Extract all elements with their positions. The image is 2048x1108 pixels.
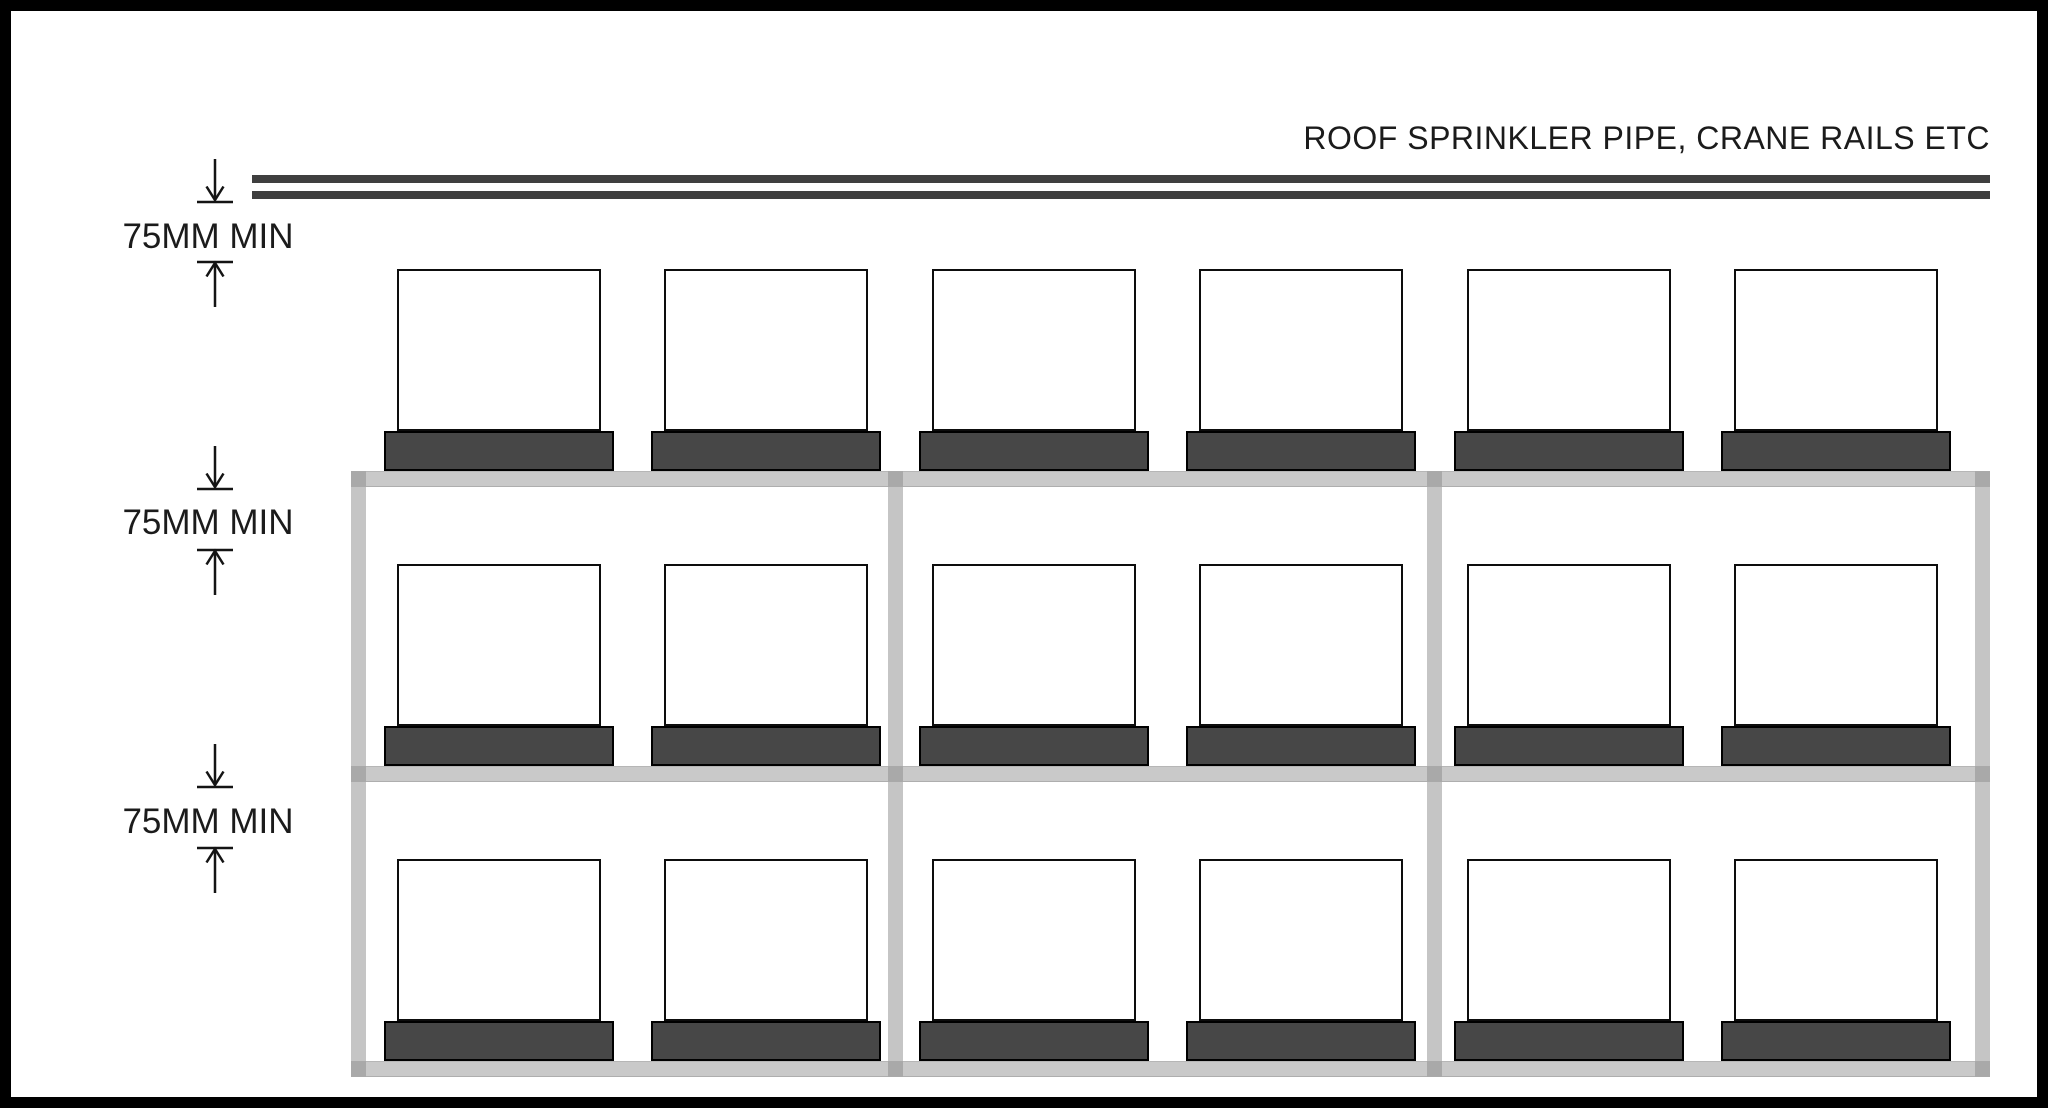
pallet-load-box bbox=[397, 564, 601, 726]
rack-beam-upright-junction bbox=[1427, 471, 1442, 487]
pallet-load-box bbox=[1199, 269, 1403, 431]
pallet-base bbox=[919, 1021, 1149, 1061]
pallet-base bbox=[1454, 726, 1684, 766]
pallet-base bbox=[384, 726, 614, 766]
rack-beam-upright-junction bbox=[888, 471, 903, 487]
rack-beam-upright-junction bbox=[888, 1061, 903, 1077]
pallet-base bbox=[1721, 1021, 1951, 1061]
pallet-load-box bbox=[664, 859, 868, 1021]
pallet-load-box bbox=[1467, 564, 1671, 726]
pallet-base bbox=[1186, 1021, 1416, 1061]
rack-beam bbox=[351, 471, 1990, 487]
rack-beam bbox=[351, 1061, 1990, 1077]
pallet-load-box bbox=[664, 564, 868, 726]
pallet-base bbox=[1721, 431, 1951, 471]
rack-beam-upright-junction bbox=[351, 471, 366, 487]
rack-beam-upright-junction bbox=[351, 766, 366, 782]
pallet-base bbox=[1454, 431, 1684, 471]
pallet-base bbox=[651, 1021, 881, 1061]
rack-beam-upright-junction bbox=[1975, 471, 1990, 487]
pallet-load-box bbox=[1734, 564, 1938, 726]
pallet-base bbox=[384, 431, 614, 471]
rack-beam-upright-junction bbox=[1975, 766, 1990, 782]
pallet-base bbox=[651, 726, 881, 766]
rack-beam-upright-junction bbox=[888, 766, 903, 782]
rack-beam bbox=[351, 766, 1990, 782]
rack-beam-upright-junction bbox=[1427, 1061, 1442, 1077]
pallet-load-box bbox=[664, 269, 868, 431]
clearance-diagram: ROOF SPRINKLER PIPE, CRANE RAILS ETC 75M… bbox=[0, 0, 2048, 1108]
pallet-load-box bbox=[932, 859, 1136, 1021]
rack-beam-upright-junction bbox=[351, 1061, 366, 1077]
pallet-load-box bbox=[1199, 564, 1403, 726]
pallet-load-box bbox=[1199, 859, 1403, 1021]
pallet-load-box bbox=[932, 269, 1136, 431]
pallet-load-box bbox=[397, 269, 601, 431]
pallet-load-box bbox=[1734, 859, 1938, 1021]
pallet-load-box bbox=[1734, 269, 1938, 431]
pallet-load-box bbox=[1467, 859, 1671, 1021]
pallet-base bbox=[1186, 726, 1416, 766]
pallet-rack bbox=[0, 0, 2048, 1108]
pallet-base bbox=[651, 431, 881, 471]
rack-beam-upright-junction bbox=[1427, 766, 1442, 782]
pallet-base bbox=[1454, 1021, 1684, 1061]
pallet-load-box bbox=[1467, 269, 1671, 431]
pallet-base bbox=[384, 1021, 614, 1061]
pallet-load-box bbox=[932, 564, 1136, 726]
pallet-base bbox=[1721, 726, 1951, 766]
pallet-load-box bbox=[397, 859, 601, 1021]
pallet-base bbox=[919, 726, 1149, 766]
pallet-base bbox=[919, 431, 1149, 471]
pallet-base bbox=[1186, 431, 1416, 471]
rack-beam-upright-junction bbox=[1975, 1061, 1990, 1077]
